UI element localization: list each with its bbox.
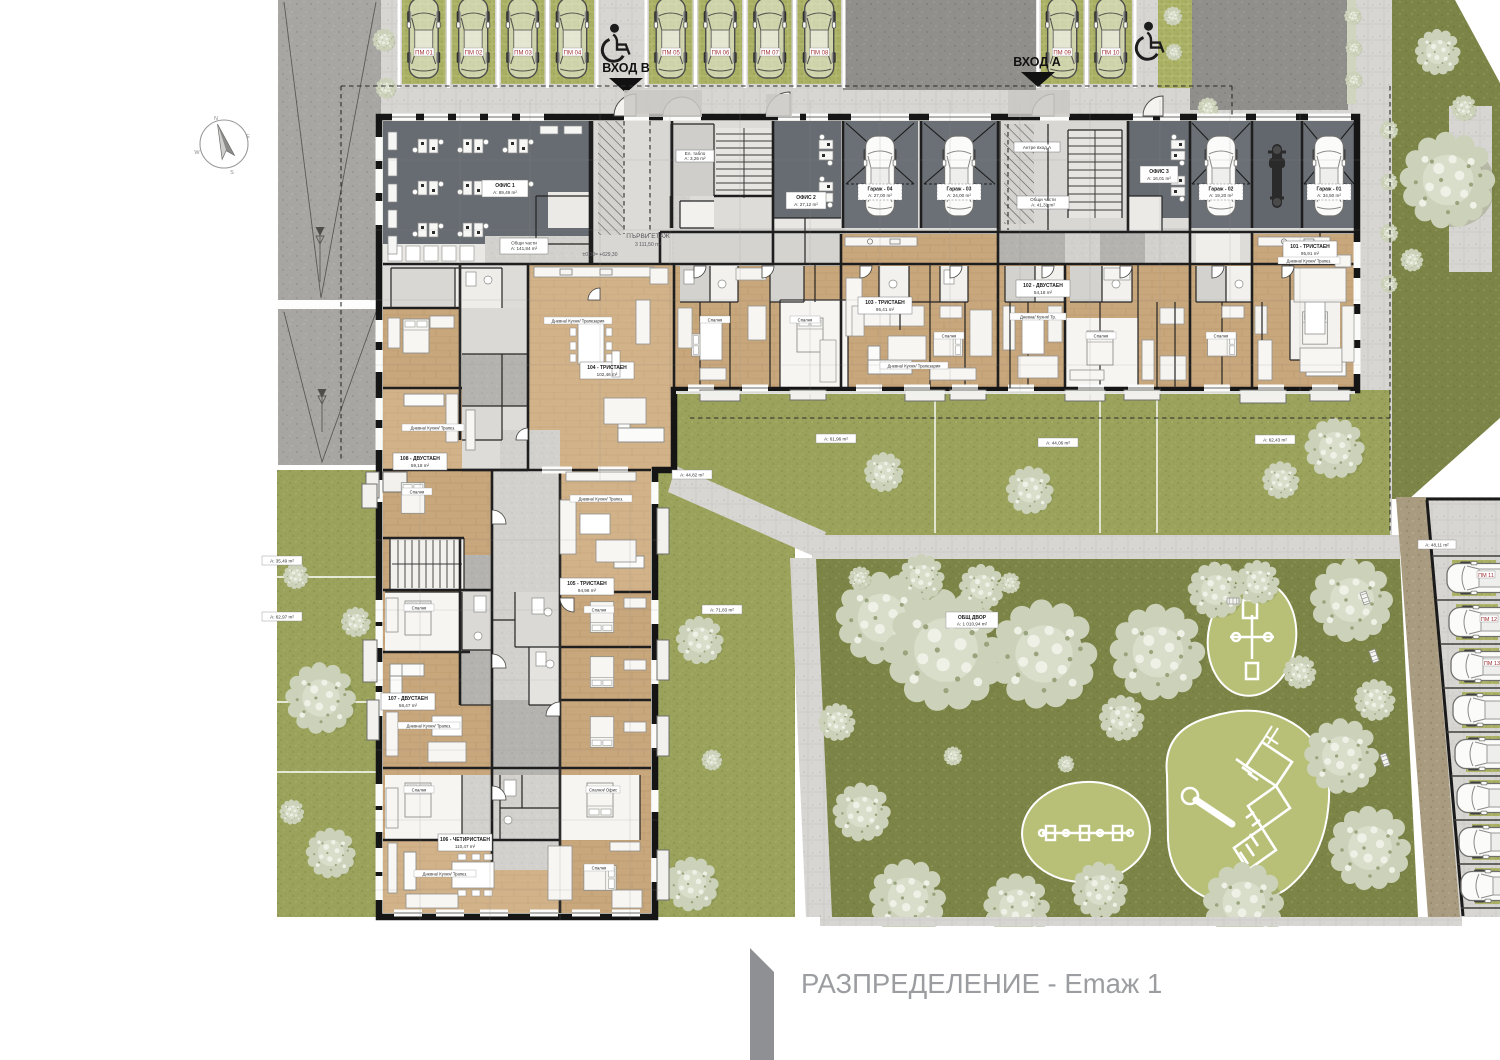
svg-text:54,18 m²: 54,18 m² [1034, 290, 1053, 295]
svg-text:Дневна/ Кухня/ Трапезария: Дневна/ Кухня/ Трапезария [888, 364, 941, 369]
svg-text:W: W [194, 150, 200, 156]
svg-text:95,91 m²: 95,91 m² [1301, 251, 1320, 256]
svg-text:S: S [230, 170, 234, 176]
svg-text:ПМ 10: ПМ 10 [1102, 50, 1120, 56]
svg-text:ПМ 11: ПМ 11 [1478, 573, 1494, 579]
svg-text:95,41 m²: 95,41 m² [876, 307, 895, 312]
svg-text:ПМ 02: ПМ 02 [465, 50, 483, 56]
svg-text:Спалня: Спалня [410, 490, 425, 495]
svg-text:Гараж - 02: Гараж - 02 [1209, 187, 1234, 193]
svg-text:Дневна/ Кухня/ Трапез.: Дневна/ Кухня/ Трапез. [1287, 259, 1332, 264]
svg-text:Дневна/ Кухня/ Трапез.: Дневна/ Кухня/ Трапез. [407, 724, 452, 729]
svg-text:N: N [214, 116, 218, 122]
svg-text:Гараж - 04: Гараж - 04 [868, 187, 893, 193]
svg-text:106 - ЧЕТИРИСТАЕН: 106 - ЧЕТИРИСТАЕН [440, 837, 490, 843]
svg-text:A: 44,06 m²: A: 44,06 m² [1046, 441, 1070, 446]
svg-text:Гараж - 03: Гараж - 03 [947, 187, 972, 193]
svg-text:103 - ТРИСТАЕН: 103 - ТРИСТАЕН [865, 300, 905, 306]
svg-text:ОФИС 3: ОФИС 3 [1149, 169, 1169, 175]
svg-text:A: 61,96 m²: A: 61,96 m² [824, 437, 848, 442]
svg-text:A: 62,97 m²: A: 62,97 m² [270, 615, 294, 620]
svg-text:Спалня: Спалня [592, 608, 607, 613]
svg-text:A: 27,00 m²: A: 27,00 m² [868, 193, 892, 198]
svg-text:Гараж - 01: Гараж - 01 [1317, 187, 1342, 193]
svg-text:Спалня/ Офис: Спалня/ Офис [589, 788, 617, 793]
svg-text:ПМ 12: ПМ 12 [1481, 617, 1497, 623]
svg-text:Спалня: Спалня [708, 318, 723, 323]
svg-text:±0,00= +629,30: ±0,00= +629,30 [583, 252, 618, 258]
svg-text:ПЪРВИ ЕТАЖ: ПЪРВИ ЕТАЖ [626, 233, 669, 240]
svg-text:ПМ 05: ПМ 05 [662, 50, 680, 56]
svg-text:ВХОД В: ВХОД В [602, 61, 650, 75]
svg-text:Спалня: Спалня [1214, 334, 1229, 339]
svg-text:A: 41,31 m²: A: 41,31 m² [1031, 203, 1055, 208]
svg-text:3 111,50 m²: 3 111,50 m² [635, 242, 661, 248]
svg-text:108 - ДВУСТАЕН: 108 - ДВУСТАЕН [400, 456, 440, 462]
svg-text:A: 141,84 m²: A: 141,84 m² [511, 246, 538, 251]
svg-text:A: 34,50 m²: A: 34,50 m² [1317, 193, 1341, 198]
svg-text:Дневна/ Кухня/ Трапез.: Дневна/ Кухня/ Трапез. [579, 497, 624, 502]
svg-text:A: 89,49 m²: A: 89,49 m² [493, 190, 517, 195]
svg-text:105 - ТРИСТАЕН: 105 - ТРИСТАЕН [567, 581, 607, 587]
svg-text:Спалня: Спалня [592, 866, 607, 871]
svg-text:Спалня: Спалня [1094, 334, 1109, 339]
svg-text:110,47 m²: 110,47 m² [455, 844, 476, 849]
svg-text:E: E [246, 134, 250, 140]
svg-text:ПМ 06: ПМ 06 [712, 50, 730, 56]
svg-text:102 - ДВУСТАЕН: 102 - ДВУСТАЕН [1023, 283, 1063, 289]
svg-text:Общи части: Общи части [511, 241, 537, 246]
svg-text:Дневна/ Кухня/ Трапез.: Дневна/ Кухня/ Трапез. [423, 872, 468, 877]
svg-text:104 - ТРИСТАЕН: 104 - ТРИСТАЕН [587, 365, 627, 371]
svg-text:Спалня: Спалня [412, 606, 427, 611]
svg-text:ПМ 01: ПМ 01 [415, 50, 433, 56]
svg-text:A: 19,20 m²: A: 19,20 m² [1209, 193, 1233, 198]
svg-text:59,18 m²: 59,18 m² [411, 463, 430, 468]
svg-text:107 - ДВУСТАЕН: 107 - ДВУСТАЕН [388, 696, 428, 702]
svg-text:101 - ТРИСТАЕН: 101 - ТРИСТАЕН [1290, 244, 1330, 250]
svg-text:58,47 m²: 58,47 m² [399, 703, 418, 708]
svg-text:ВХОД А: ВХОД А [1013, 55, 1061, 69]
svg-text:Спалня: Спалня [942, 334, 957, 339]
svg-text:A: 3,26 m²: A: 3,26 m² [684, 156, 706, 161]
svg-text:Спалня: Спалня [412, 788, 427, 793]
svg-text:A: 71,83 m²: A: 71,83 m² [710, 608, 734, 613]
svg-text:ПМ 13: ПМ 13 [1484, 661, 1500, 667]
svg-text:A: 62,43 m²: A: 62,43 m² [1263, 438, 1287, 443]
svg-text:ОФИС 1: ОФИС 1 [495, 183, 515, 189]
svg-text:A: 1 010,94 m²: A: 1 010,94 m² [957, 622, 988, 627]
svg-text:ПМ 04: ПМ 04 [564, 50, 582, 56]
svg-text:A: 24,00 m²: A: 24,00 m² [947, 193, 971, 198]
svg-text:Спалня: Спалня [798, 318, 813, 323]
svg-text:A: 44,82 m²: A: 44,82 m² [680, 473, 704, 478]
svg-text:Дневна/ Кухня/ Трапезария: Дневна/ Кухня/ Трапезария [552, 319, 605, 324]
svg-text:94,98 m²: 94,98 m² [578, 588, 597, 593]
svg-text:РАЗПРЕДЕЛЕНИЕ - Emaж 1: РАЗПРЕДЕЛЕНИЕ - Emaж 1 [801, 968, 1162, 999]
svg-text:ОБЩ ДВОР: ОБЩ ДВОР [958, 615, 987, 621]
svg-text:A: 27,12 m²: A: 27,12 m² [794, 202, 818, 207]
svg-text:Дневна/ Кухня/ Тр.: Дневна/ Кухня/ Тр. [1020, 315, 1056, 320]
svg-text:ПМ 08: ПМ 08 [811, 50, 829, 56]
svg-text:Общи части: Общи части [1030, 197, 1056, 202]
svg-text:A: 16,01 m²: A: 16,01 m² [1147, 176, 1171, 181]
svg-text:ПМ 03: ПМ 03 [514, 50, 532, 56]
svg-text:Дневна/ Кухня/ Трапез.: Дневна/ Кухня/ Трапез. [411, 426, 456, 431]
svg-text:A: 35,49 m²: A: 35,49 m² [270, 559, 294, 564]
svg-text:ПМ 07: ПМ 07 [761, 50, 779, 56]
svg-text:ОФИС 2: ОФИС 2 [796, 195, 816, 201]
svg-text:102,46 m²: 102,46 m² [597, 372, 618, 377]
svg-text:A: 48,11 m²: A: 48,11 m² [1425, 543, 1449, 548]
